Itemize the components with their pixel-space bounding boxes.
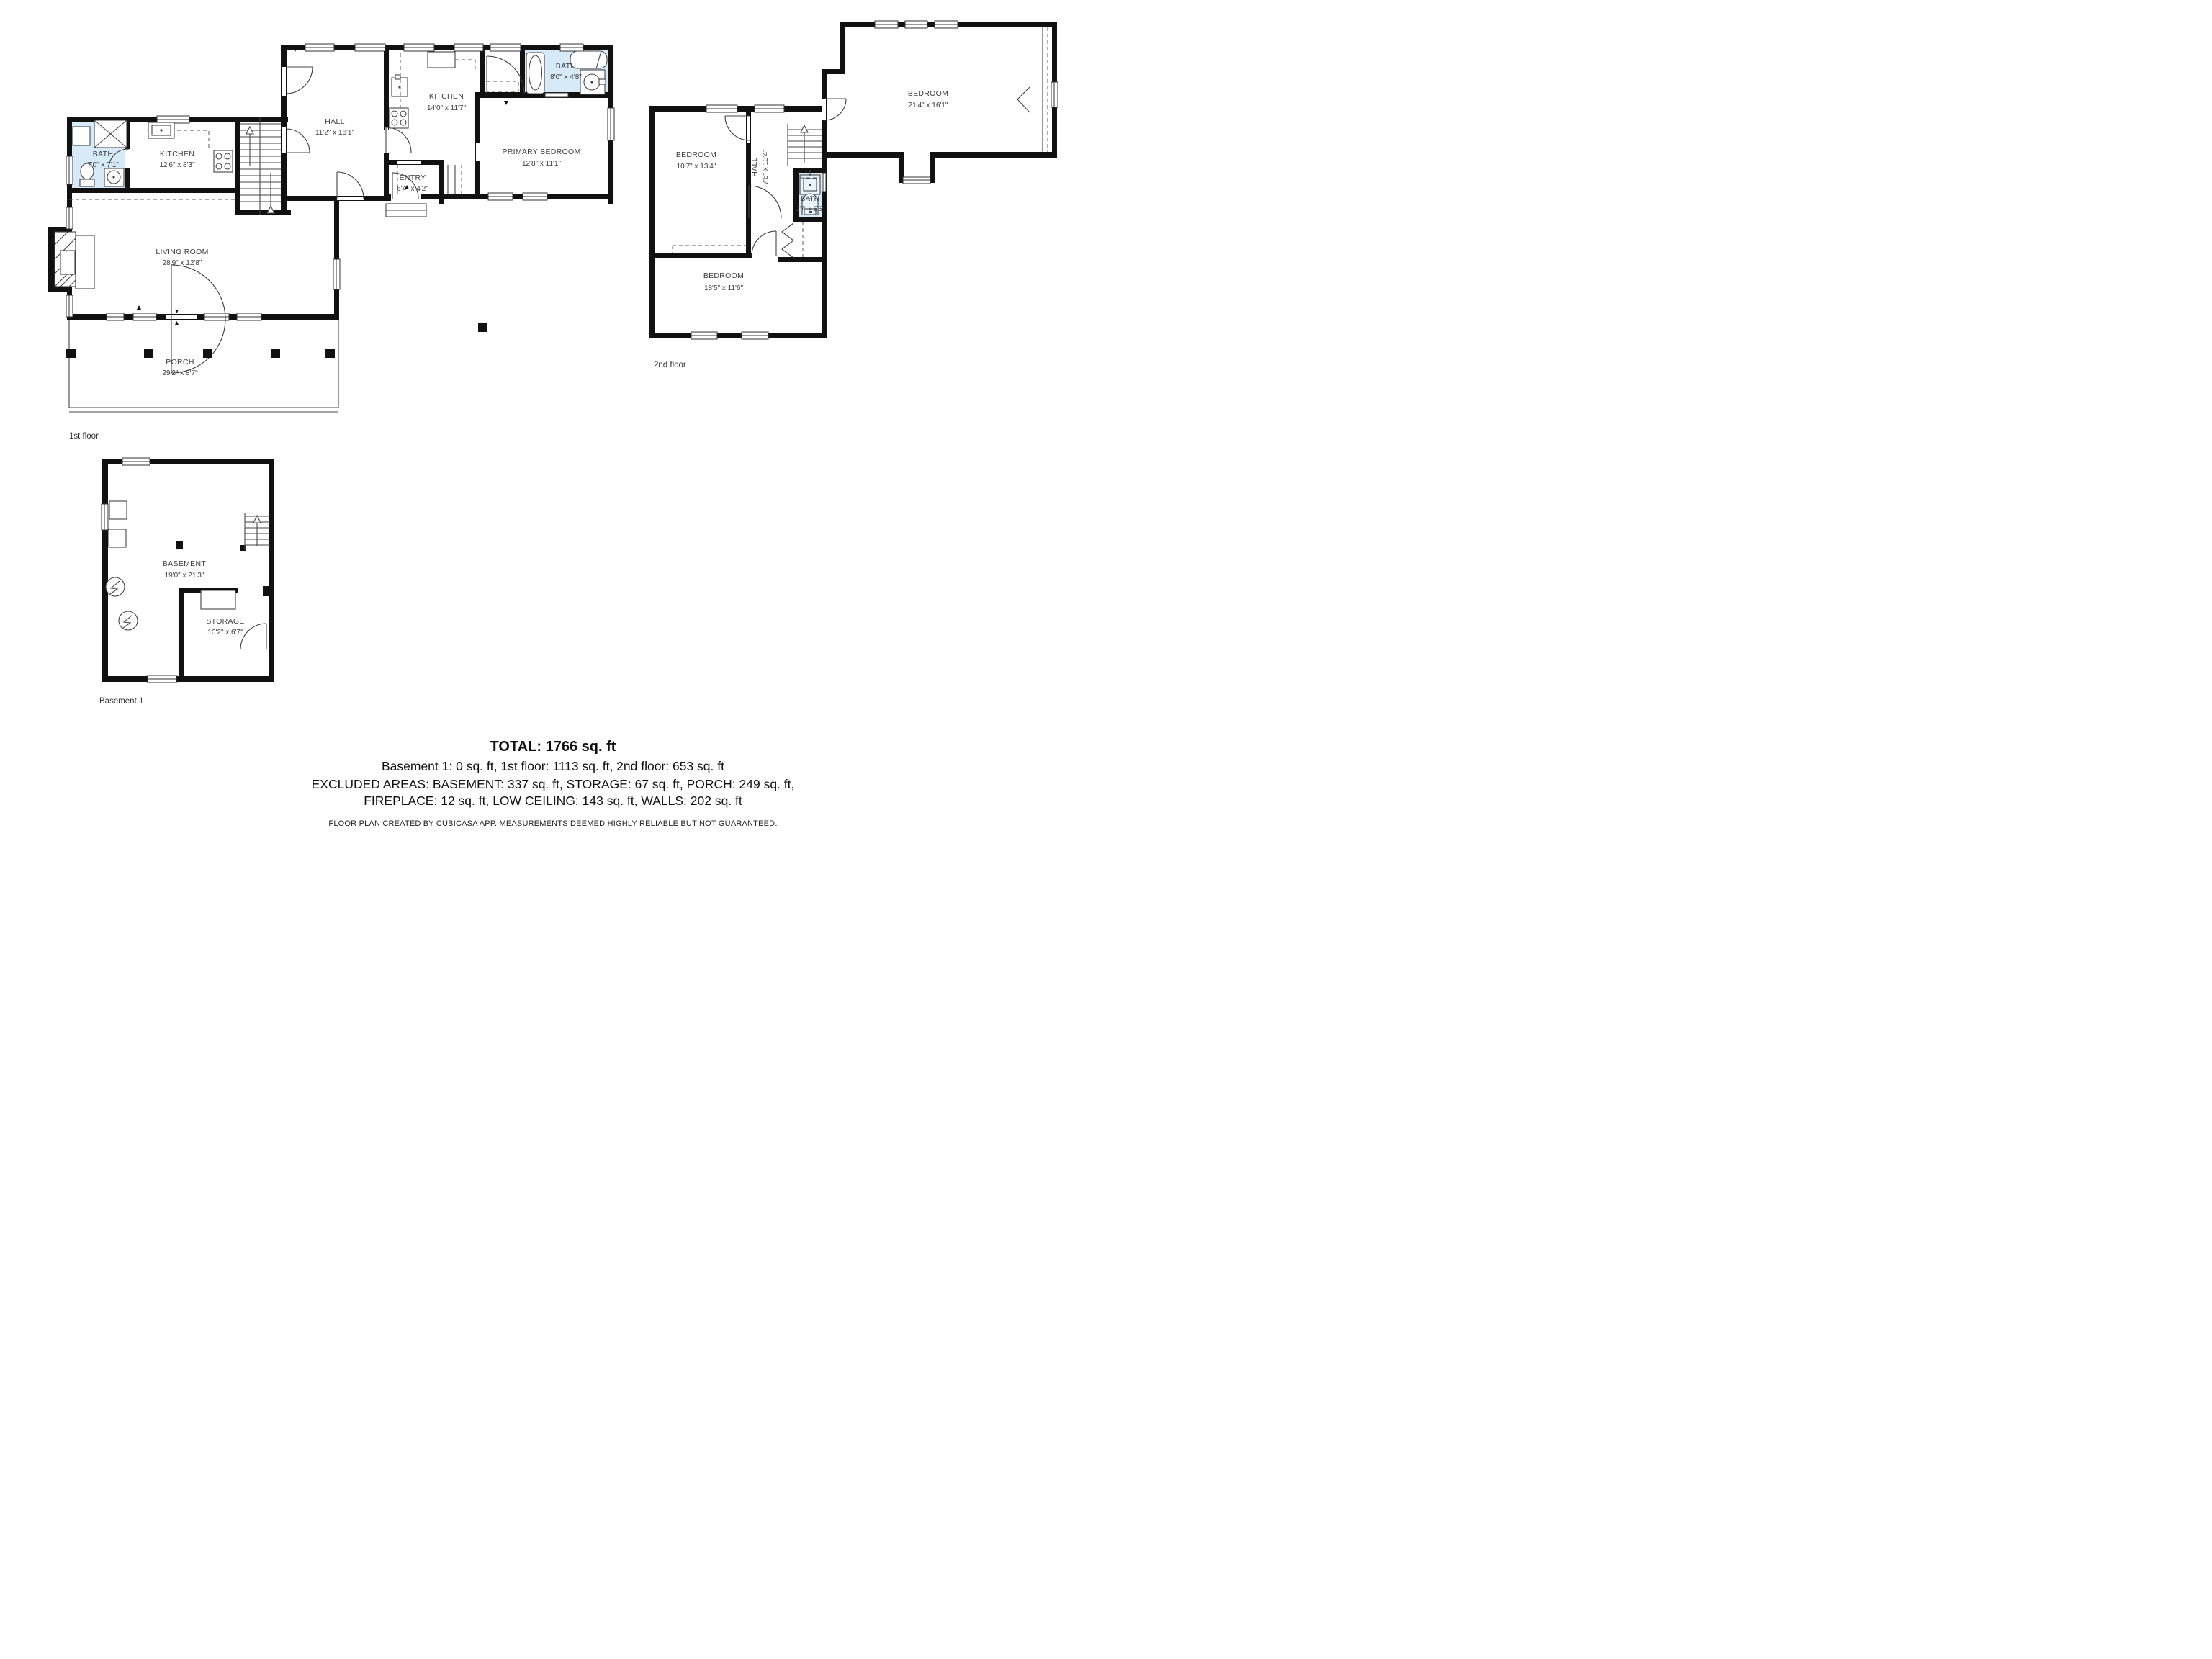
counter-dash xyxy=(177,130,209,150)
fridge-icon xyxy=(428,52,455,68)
room-dims-bath2: 8'0" x 4'8" xyxy=(550,73,582,81)
washer-icon xyxy=(73,127,90,145)
stairs-icon xyxy=(245,513,270,550)
room-dims-entry: 6'4" x 4'2" xyxy=(397,185,428,193)
sink-icon xyxy=(104,168,124,186)
closet xyxy=(487,56,524,94)
summary-by-floor: Basement 1: 0 sq. ft, 1st floor: 1113 sq… xyxy=(382,759,724,773)
summary-excluded-2: FIREPLACE: 12 sq. ft, LOW CEILING: 143 s… xyxy=(364,793,742,808)
room-label-living: LIVING ROOM xyxy=(156,248,208,256)
sink-icon xyxy=(580,70,606,94)
kitchen-sink-icon xyxy=(148,122,174,138)
stairs-down-icon xyxy=(448,165,462,194)
room-dims-bedroom-large: 21'4" x 16'1" xyxy=(909,102,948,109)
room-dims-kitchen: 14'0" x 11'7" xyxy=(427,104,467,112)
room-label-storage: STORAGE xyxy=(206,617,244,626)
walls-basement xyxy=(102,459,274,682)
room-dims-bedroom-bottom: 18'5" x 11'6" xyxy=(704,284,744,292)
room-dims-living: 28'9" x 12'8" xyxy=(163,259,202,267)
room-dims-bath: 7'0" x 7'1" xyxy=(87,161,119,169)
room-dims-primary: 12'8" x 11'1" xyxy=(522,160,562,168)
stairs-icon xyxy=(788,124,822,166)
room-label-primary: PRIMARY BEDROOM xyxy=(502,148,580,156)
room-label-bath2: BATH xyxy=(556,62,576,71)
stoop xyxy=(386,204,487,332)
room-label-entry: ENTRY xyxy=(400,174,426,182)
summary-total: TOTAL: 1766 sq. ft xyxy=(490,739,616,755)
opening-ticks xyxy=(137,48,508,325)
summary-excluded-1: EXCLUDED AREAS: BASEMENT: 337 sq. ft, ST… xyxy=(312,777,795,791)
fireplace-icon xyxy=(55,232,94,289)
storage-shelf xyxy=(201,590,235,609)
windows-basement xyxy=(102,458,176,683)
room-dims-storage: 10'2" x 6'7" xyxy=(207,629,243,637)
room-label-basement: BASEMENT xyxy=(163,559,206,568)
room-label-bath: BATH xyxy=(93,150,113,158)
summary-block: TOTAL: 1766 sq. ft Basement 1: 0 sq. ft,… xyxy=(312,739,795,828)
stairs-icon xyxy=(240,117,281,215)
summary-disclaimer: FLOOR PLAN CREATED BY CUBICASA APP. MEAS… xyxy=(328,819,777,828)
room-label-kitchen-small: KITCHEN xyxy=(160,150,194,158)
floor-plan-sheet: BATH 7'0" x 7'1" KITCHEN 12'6" x 8'3" HA… xyxy=(0,0,1106,829)
room-label-bath: BATH xyxy=(801,195,819,203)
low-ceiling-lines xyxy=(1017,27,1048,152)
room-dims-kitchen-small: 12'6" x 8'3" xyxy=(159,161,195,169)
floor-caption-basement: Basement 1 xyxy=(99,697,143,706)
room-dims-hall: 11'2" x 16'1" xyxy=(315,129,355,137)
stove-icon xyxy=(214,150,233,172)
room-dims-basement: 19'0" x 21'3" xyxy=(165,572,204,580)
room-label-hall: HALL xyxy=(750,157,759,176)
porch-outline xyxy=(66,320,338,412)
bifold-door-icon xyxy=(782,222,803,258)
room-label-bedroom-bottom: BEDROOM xyxy=(703,271,744,280)
floor-plan-second: BEDROOM 21'4" x 16'1" BEDROOM 10'7" x 13… xyxy=(649,21,1058,369)
floor-caption-second: 2nd floor xyxy=(654,361,686,369)
floor-plan-basement: BASEMENT 19'0" x 21'3" STORAGE 10'2" x 6… xyxy=(99,458,274,706)
room-label-porch: PORCH xyxy=(166,358,194,367)
room-label-hall: HALL xyxy=(325,117,344,126)
appliance-box-icon xyxy=(109,501,127,519)
room-dims-porch: 29'2" x 8'7" xyxy=(162,369,198,377)
low-ceiling-dash xyxy=(673,246,746,253)
appliance-box-icon xyxy=(109,529,126,547)
room-dims-hall: 7'6" x 13'4" xyxy=(762,149,770,185)
counter-dash xyxy=(455,60,475,72)
room-dims-bath: 2'7" x 5'5" xyxy=(796,205,824,212)
room-label-bedroom-left: BEDROOM xyxy=(676,150,716,159)
door-arc xyxy=(725,99,846,256)
water-heater-icon xyxy=(106,577,138,630)
stove-icon xyxy=(390,108,408,128)
shower-icon xyxy=(94,120,127,148)
floor-plan-first: BATH 7'0" x 7'1" KITCHEN 12'6" x 8'3" HA… xyxy=(48,44,614,441)
door-arc xyxy=(240,624,266,649)
room-dims-bedroom-left: 10'7" x 13'4" xyxy=(677,163,716,171)
room-label-bedroom-large: BEDROOM xyxy=(908,89,948,98)
room-label-kitchen: KITCHEN xyxy=(429,92,464,101)
floor-caption-first: 1st floor xyxy=(69,432,99,441)
kitchen-sink-icon xyxy=(392,75,408,96)
